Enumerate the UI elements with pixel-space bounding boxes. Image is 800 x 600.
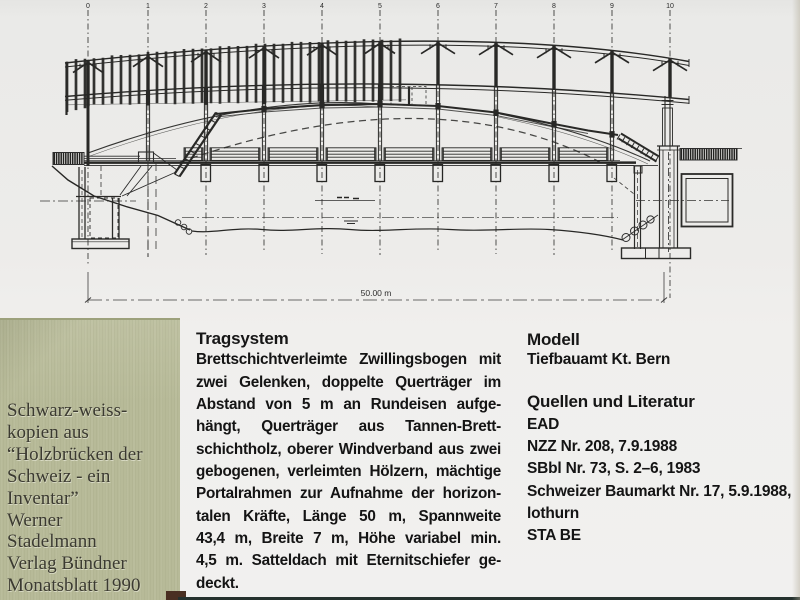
- svg-text:10: 10: [666, 3, 674, 10]
- svg-text:7: 7: [494, 3, 498, 10]
- svg-text:9: 9: [610, 3, 614, 10]
- svg-text:5: 5: [378, 3, 382, 10]
- svg-text:8: 8: [552, 3, 556, 10]
- svg-text:6: 6: [436, 3, 440, 10]
- svg-text:2: 2: [204, 3, 208, 10]
- svg-text:1: 1: [146, 3, 150, 10]
- svg-text:0: 0: [86, 3, 90, 10]
- svg-text:50.00 m: 50.00 m: [361, 288, 392, 298]
- svg-text:3: 3: [262, 3, 266, 10]
- svg-text:4: 4: [320, 3, 324, 10]
